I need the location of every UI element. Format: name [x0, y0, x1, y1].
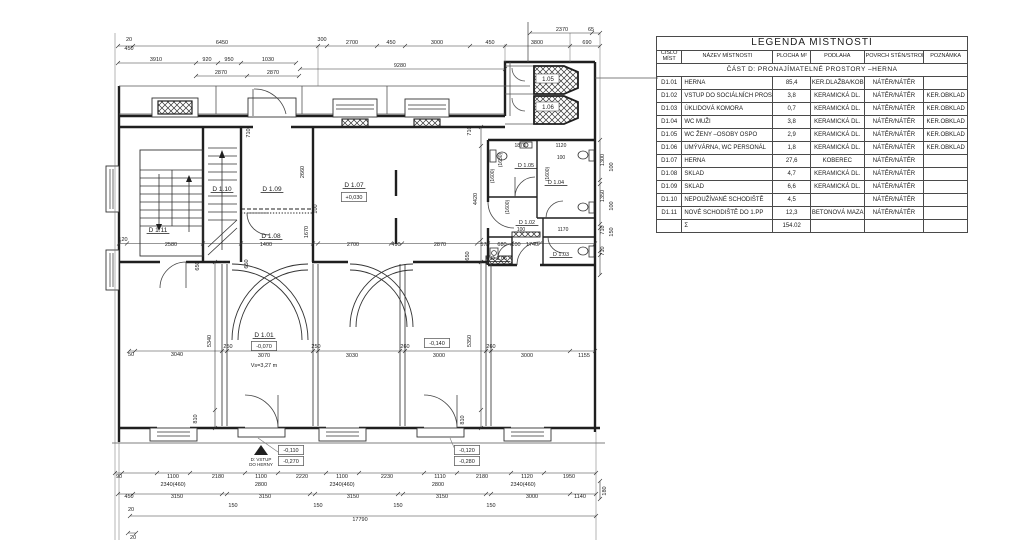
room-label-d1-05: D 1.05 — [518, 163, 534, 169]
dim-line — [116, 44, 602, 48]
dim-text: 3000 — [433, 353, 445, 359]
dim-text: 810 — [460, 415, 466, 424]
legend-room-floor: KER.DLAŽBA/KOBEREC — [810, 77, 864, 90]
dim-text: 490 — [391, 242, 400, 248]
dim-text: 3000 — [526, 494, 538, 500]
bottom-window-bays — [112, 428, 605, 443]
dim-text: 50 — [128, 352, 134, 358]
dim-text: 9280 — [394, 63, 406, 69]
dim-text: 150 — [313, 503, 322, 509]
dim-text: 2660 — [300, 166, 306, 178]
dim-text: 3040 — [171, 352, 183, 358]
dim-text: 680 — [497, 242, 506, 248]
legend-room-walls: NÁTĚR/NÁTĚR — [864, 168, 924, 181]
dim-text: 180 — [602, 486, 608, 495]
stair-d1-10 — [208, 148, 237, 255]
dim-text: 100 — [313, 204, 319, 213]
dim-text: 650 — [465, 251, 471, 260]
dim-text: 950 — [224, 57, 233, 63]
legend-col-header: PLOCHAM² — [773, 51, 810, 64]
dim-text: 2180 — [212, 474, 224, 480]
dim-text: 2340(460) — [329, 482, 354, 488]
legend-cell — [810, 220, 864, 233]
legend-section-row: ČÁST D: PRONAJÍMATELNÉ PROSTORY –HERNA — [657, 64, 968, 77]
dim-text: 1350 — [600, 190, 606, 202]
dim-text: Vs=3,27 m — [251, 363, 278, 369]
legend-room-floor: KERAMICKÁ DL. — [810, 129, 864, 142]
legend-room-area: 4,5 — [773, 194, 810, 207]
dim-text: 710 — [246, 128, 252, 137]
door-arc — [512, 68, 525, 111]
legend-room-floor: KERAMICKÁ DL. — [810, 103, 864, 116]
dim-text: (1630) — [498, 152, 504, 167]
dim-text: 100 — [557, 155, 566, 161]
dim-text: 810 — [193, 414, 199, 423]
legend-col-header: ČÍSLOMÍST — [657, 51, 682, 64]
dim-text: 3150 — [436, 494, 448, 500]
level-box: -0,120 — [459, 448, 475, 454]
dim-text: 100 — [609, 201, 615, 210]
legend-room-number: D1.08 — [657, 168, 682, 181]
legend-table: LEGENDA MÍSTNOSTÍČÍSLOMÍSTNÁZEV MÍSTNOST… — [656, 36, 968, 233]
dim-text: 260 — [486, 344, 495, 350]
legend-room-number: D1.09 — [657, 181, 682, 194]
legend-room-note: KER.OBKLAD — [924, 103, 968, 116]
dim-text: (1600) — [490, 168, 496, 183]
legend-room-walls: NÁTĚR/NÁTĚR — [864, 142, 924, 155]
level-box: -0,270 — [283, 459, 299, 465]
legend-room-name: HERNA — [682, 77, 773, 90]
dim-text: 570 — [480, 242, 489, 248]
dim-text: 150 — [393, 503, 402, 509]
legend-col-header: POZNÁMKA — [924, 51, 968, 64]
dim-text: 450 — [485, 40, 494, 46]
legend-room-number: D1.03 — [657, 103, 682, 116]
legend-room-area: 85,4 — [773, 77, 810, 90]
legend-room-name: NEPOUŽÍVANÉ SCHODIŠTĚ — [682, 194, 773, 207]
dim-text: 1300 — [600, 154, 606, 166]
dim-text: 3910 — [150, 57, 162, 63]
left-window-bays — [106, 166, 119, 290]
dim-text: 1100 — [255, 474, 267, 480]
legend-room-note — [924, 194, 968, 207]
legend-room-area: 3,8 — [773, 90, 810, 103]
legend-room-note — [924, 168, 968, 181]
room-label-1-06: 1.06 — [542, 105, 554, 111]
dim-line — [213, 260, 217, 430]
legend-row: D1.03ÚKLIDOVÁ KOMORA0,7KERAMICKÁ DL.NÁTĚ… — [657, 103, 968, 116]
level-box: -0,280 — [459, 459, 475, 465]
dim-text: 5340 — [207, 335, 213, 347]
room-label-d1-01: D 1.01 — [254, 332, 274, 339]
dim-text: 2340(460) — [510, 482, 535, 488]
legend-room-walls: NÁTĚR/NÁTĚR — [864, 194, 924, 207]
legend-room-number: D1.01 — [657, 77, 682, 90]
dim-text: 2800 — [255, 482, 267, 488]
legend-room-note — [924, 77, 968, 90]
legend-room-note: KER.OBKLAD — [924, 129, 968, 142]
legend-room-note — [924, 181, 968, 194]
dim-text: 20 — [130, 535, 136, 541]
corridor-band — [119, 22, 658, 114]
legend-room-number: D1.07 — [657, 155, 682, 168]
dim-text: 650 — [195, 261, 201, 270]
dim-line — [479, 260, 483, 430]
dim-text: 3000 — [431, 40, 443, 46]
dim-text: 1740 — [526, 242, 538, 248]
dim-text: 2870 — [267, 70, 279, 76]
dim-text: 1155 — [578, 353, 590, 359]
dim-text: 2370 — [556, 27, 568, 33]
dim-text: 150 — [486, 503, 495, 509]
legend-room-name: SKLAD — [682, 168, 773, 181]
legend-row: D1.06UMÝVÁRNA, WC PERSONÁL1,8KERAMICKÁ D… — [657, 142, 968, 155]
legend-room-note: KER.OBKLAD — [924, 116, 968, 129]
dim-text: 5350 — [467, 335, 473, 347]
legend-room-walls: NÁTĚR/NÁTĚR — [864, 77, 924, 90]
dim-text: 1400 — [260, 242, 272, 248]
legend-room-name: WC ŽENY –OSOBY OSPO — [682, 129, 773, 142]
dim-text: 3070 — [258, 353, 270, 359]
legend-room-walls: NÁTĚR/NÁTĚR — [864, 207, 924, 220]
legend-room-area: 2,9 — [773, 129, 810, 142]
legend-room-walls: NÁTĚR/NÁTĚR — [864, 90, 924, 103]
legend-room-name: ÚKLIDOVÁ KOMORA — [682, 103, 773, 116]
dim-text: 100 — [511, 242, 520, 248]
dim-text: 2700 — [346, 40, 358, 46]
legend-room-area: 27,6 — [773, 155, 810, 168]
dim-text: 2700 — [347, 242, 359, 248]
legend-row: D1.02VSTUP DO SOCIÁLNÍCH PROSTOR3,8KERAM… — [657, 90, 968, 103]
dim-line — [194, 74, 301, 78]
legend-sum-area: 154.02 — [773, 220, 810, 233]
dim-text: 2340(460) — [160, 482, 185, 488]
legend-room-number: D1.05 — [657, 129, 682, 142]
dim-text: 3150 — [171, 494, 183, 500]
dim-text: 450 — [124, 46, 133, 52]
legend-room-area: 0,7 — [773, 103, 810, 116]
legend-title: LEGENDA MÍSTNOSTÍ — [657, 37, 968, 51]
legend-sum-row: Σ154.02 — [657, 220, 968, 233]
legend-row: D1.11NOVÉ SCHODIŠTĚ DO 1.PP12,3BETONOVÁ … — [657, 207, 968, 220]
legend-row: D1.01HERNA85,4KER.DLAŽBA/KOBERECNÁTĚR/NÁ… — [657, 77, 968, 90]
dim-text: 2580 — [165, 242, 177, 248]
legend-cell — [924, 220, 968, 233]
legend-row: D1.07HERNA27,6KOBERECNÁTĚR/NÁTĚR — [657, 155, 968, 168]
legend-col-header: PODLAHA — [810, 51, 864, 64]
dim-text: 2870 — [215, 70, 227, 76]
legend-cell — [657, 220, 682, 233]
dim-text: 1120 — [556, 143, 567, 149]
dim-text: 20 — [128, 507, 134, 513]
dim-text: 1170 — [558, 227, 569, 233]
dim-text: 650 — [244, 259, 250, 268]
legend-col-header: POVRCH STĚN/STROPU — [864, 51, 924, 64]
legend-room-walls: NÁTĚR/NÁTĚR — [864, 155, 924, 168]
room-label-1-05: 1.05 — [542, 77, 554, 83]
legend-room-floor — [810, 194, 864, 207]
legend-room-name: HERNA — [682, 155, 773, 168]
room-label-d1-11: D 1.11 — [149, 227, 168, 234]
level-d1-07: +0,030 — [346, 195, 363, 201]
legend-row: D1.09SKLAD6,6KERAMICKÁ DL.NÁTĚR/NÁTĚR — [657, 181, 968, 194]
legend-room-name: VSTUP DO SOCIÁLNÍCH PROSTOR — [682, 90, 773, 103]
dim-text: 1120 — [521, 474, 533, 480]
dim-text: 300 — [317, 37, 326, 43]
dim-text: 710 — [600, 225, 606, 234]
legend-room-note — [924, 155, 968, 168]
arched-openings — [232, 264, 413, 340]
dim-text: 450 — [386, 40, 395, 46]
legend-room-area: 4,7 — [773, 168, 810, 181]
level-box: -0,140 — [429, 341, 445, 347]
dim-text: 90 — [116, 474, 122, 480]
dim-text: 2870 — [434, 242, 446, 248]
legend-room-walls: NÁTĚR/NÁTĚR — [864, 181, 924, 194]
top-window-bays — [152, 98, 449, 127]
dim-text: 920 — [202, 57, 211, 63]
dim-text: 2180 — [476, 474, 488, 480]
legend-room-number: D1.10 — [657, 194, 682, 207]
legend-room-floor: KERAMICKÁ DL. — [810, 90, 864, 103]
legend-room-name: NOVÉ SCHODIŠTĚ DO 1.PP — [682, 207, 773, 220]
dim-text: 20 — [126, 37, 132, 43]
room-label-d1-04: D 1.04 — [548, 180, 564, 186]
legend-room-floor: KERAMICKÁ DL. — [810, 168, 864, 181]
legend-room-walls: NÁTĚR/NÁTĚR — [864, 103, 924, 116]
dim-text: 6450 — [216, 40, 228, 46]
hatched-rooms — [505, 62, 578, 124]
legend-row: D1.04WC MUŽI3,8KERAMICKÁ DL.NÁTĚR/NÁTĚRK… — [657, 116, 968, 129]
legend-room-area: 1,8 — [773, 142, 810, 155]
dim-text: 1670 — [304, 226, 310, 238]
entrance-note: DO HERNY — [249, 462, 273, 467]
room-label-d1-08: D 1.08 — [261, 233, 281, 240]
legend-row: D1.08SKLAD4,7KERAMICKÁ DL.NÁTĚR/NÁTĚR — [657, 168, 968, 181]
legend-room-note — [924, 207, 968, 220]
dim-text: 3800 — [531, 40, 543, 46]
legend-sum-label: Σ — [682, 220, 773, 233]
legend-room-floor: KERAMICKÁ DL. — [810, 116, 864, 129]
dim-text: 2800 — [432, 482, 444, 488]
legend-room-area: 6,6 — [773, 181, 810, 194]
dim-text: 100 — [517, 227, 526, 233]
legend-room-name: UMÝVÁRNA, WC PERSONÁL — [682, 142, 773, 155]
dim-text: 250 — [223, 344, 232, 350]
legend-room-number: D1.06 — [657, 142, 682, 155]
level-d1-01: -0,070 — [256, 344, 272, 350]
legend-room-walls: NÁTĚR/NÁTĚR — [864, 116, 924, 129]
legend-col-header: NÁZEV MÍSTNOSTI — [682, 51, 773, 64]
dim-text: 1110 — [434, 474, 445, 480]
dim-text: 150 — [609, 227, 615, 236]
legend-room-floor: KERAMICKÁ DL. — [810, 181, 864, 194]
dim-text: 17790 — [352, 517, 367, 523]
dim-text: 2220 — [296, 474, 308, 480]
legend-room-walls: NÁTĚR/NÁTĚR — [864, 129, 924, 142]
dim-text: 690 — [582, 40, 591, 46]
legend-room-number: D1.11 — [657, 207, 682, 220]
dim-text: 1100 — [167, 474, 179, 480]
dim-text: 1100 — [336, 474, 348, 480]
room-label-d1-02: D 1.02 — [519, 220, 535, 226]
legend-row: D1.10NEPOUŽÍVANÉ SCHODIŠTĚ4,5NÁTĚR/NÁTĚR — [657, 194, 968, 207]
level-box: -0,110 — [283, 448, 298, 454]
dim-text: 710 — [600, 246, 606, 255]
dim-text: 250 — [311, 344, 320, 350]
dim-text: 100 — [609, 162, 615, 171]
room-label-d1-07: D 1.07 — [344, 182, 364, 189]
legend-table-container: LEGENDA MÍSTNOSTÍČÍSLOMÍSTNÁZEV MÍSTNOST… — [656, 36, 968, 233]
dim-text: 3150 — [347, 494, 359, 500]
dim-text: 450 — [124, 494, 133, 500]
drawing-canvas: 2045064503002700450300045038006902370653… — [0, 0, 1024, 554]
room-label-d1-06: D 1.06 — [491, 256, 507, 262]
dim-text: 150 — [228, 503, 237, 509]
dim-text: 3150 — [259, 494, 271, 500]
dim-text: 260 — [400, 344, 409, 350]
dim-text: 3030 — [346, 353, 358, 359]
entrance-arrow — [254, 445, 268, 455]
room-label-d1-03: D 1.03 — [553, 252, 569, 258]
legend-room-note: KER.OBKLAD — [924, 90, 968, 103]
room-label-d1-09: D 1.09 — [262, 186, 282, 193]
dim-text: 3000 — [521, 353, 533, 359]
legend-room-number: D1.04 — [657, 116, 682, 129]
legend-room-number: D1.02 — [657, 90, 682, 103]
dim-text: 1030 — [262, 57, 274, 63]
legend-room-floor: KERAMICKÁ DL. — [810, 142, 864, 155]
legend-room-floor: BETONOVÁ MAZANINA — [810, 207, 864, 220]
dim-text: (1600) — [545, 166, 551, 181]
legend-room-area: 3,8 — [773, 116, 810, 129]
legend-row: D1.05WC ŽENY –OSOBY OSPO2,9KERAMICKÁ DL.… — [657, 129, 968, 142]
dim-text: 65 — [588, 27, 594, 33]
stair-d1-11 — [140, 150, 203, 256]
legend-room-area: 12,3 — [773, 207, 810, 220]
dim-text: 1140 — [574, 494, 586, 500]
legend-room-floor: KOBEREC — [810, 155, 864, 168]
dim-text: 120 — [118, 237, 127, 243]
dim-text: 4420 — [473, 193, 479, 205]
legend-cell — [864, 220, 924, 233]
room-label-d1-10: D 1.10 — [212, 186, 232, 193]
dim-text: 710 — [467, 126, 473, 135]
dim-text: (1600) — [505, 199, 511, 214]
legend-room-name: WC MUŽI — [682, 116, 773, 129]
legend-room-name: SKLAD — [682, 181, 773, 194]
dim-text: 1950 — [563, 474, 575, 480]
legend-room-note: KER.OBKLAD — [924, 142, 968, 155]
dim-text: 1870 — [514, 143, 525, 149]
dim-text: 2230 — [381, 474, 393, 480]
